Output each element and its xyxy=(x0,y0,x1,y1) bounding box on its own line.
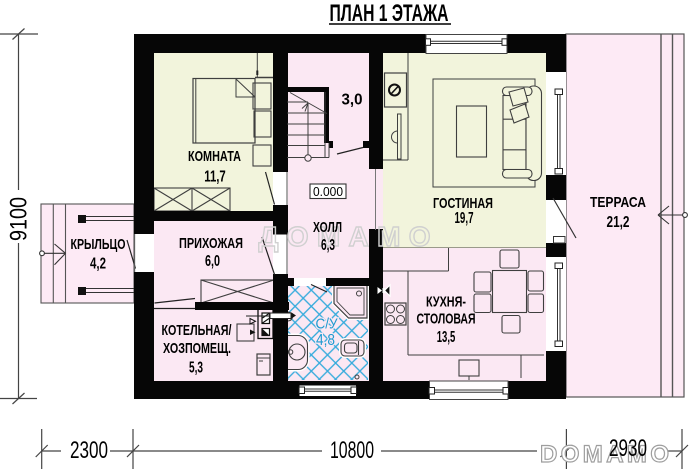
svg-text:10800: 10800 xyxy=(330,437,374,464)
svg-text:ПЛАН 1 ЭТАЖА: ПЛАН 1 ЭТАЖА xyxy=(330,0,449,27)
svg-text:5,3: 5,3 xyxy=(189,360,203,377)
svg-text:19,7: 19,7 xyxy=(455,210,474,227)
svg-text:11,7: 11,7 xyxy=(204,169,226,186)
svg-text:КОТЕЛЬНАЯ/: КОТЕЛЬНАЯ/ xyxy=(162,322,233,339)
svg-text:2300: 2300 xyxy=(70,437,108,464)
svg-text:2930: 2930 xyxy=(609,435,647,462)
svg-text:КРЫЛЬЦО: КРЫЛЬЦО xyxy=(71,236,126,253)
svg-text:КУХНЯ-: КУХНЯ- xyxy=(426,294,466,311)
svg-text:13,5: 13,5 xyxy=(437,329,456,346)
svg-text:21,2: 21,2 xyxy=(607,214,630,231)
svg-text:ХОЛЛ: ХОЛЛ xyxy=(313,219,342,236)
svg-text:КОМНАТА: КОМНАТА xyxy=(188,148,241,165)
svg-text:4,8: 4,8 xyxy=(316,332,335,349)
svg-text:ХОЗПОМЕЩ.: ХОЗПОМЕЩ. xyxy=(163,340,231,357)
svg-text:С/У: С/У xyxy=(316,317,339,333)
svg-text:4,2: 4,2 xyxy=(90,256,106,273)
svg-text:3,0: 3,0 xyxy=(342,92,363,109)
svg-text:9100: 9100 xyxy=(6,197,33,241)
svg-text:6,0: 6,0 xyxy=(205,253,220,270)
svg-text:ПРИХОЖАЯ: ПРИХОЖАЯ xyxy=(179,235,243,252)
svg-text:СТОЛОВАЯ: СТОЛОВАЯ xyxy=(417,311,476,328)
svg-text:ТЕРРАСА: ТЕРРАСА xyxy=(590,194,646,211)
svg-text:6,3: 6,3 xyxy=(321,237,335,254)
svg-text:0.000: 0.000 xyxy=(313,185,343,199)
